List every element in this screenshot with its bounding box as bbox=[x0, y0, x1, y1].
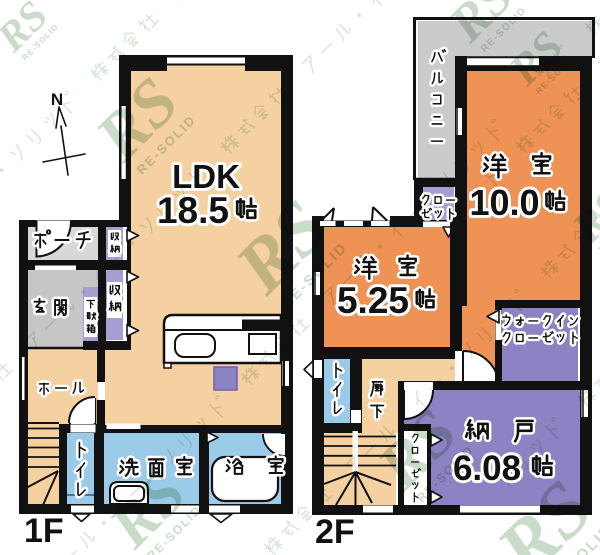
svg-text:N: N bbox=[51, 90, 63, 109]
svg-text:1F: 1F bbox=[24, 512, 64, 550]
svg-text:2F: 2F bbox=[315, 513, 355, 551]
svg-text:5.25: 5.25 bbox=[337, 280, 409, 321]
svg-text:10.0: 10.0 bbox=[469, 182, 539, 223]
svg-text:18.5: 18.5 bbox=[157, 190, 229, 231]
